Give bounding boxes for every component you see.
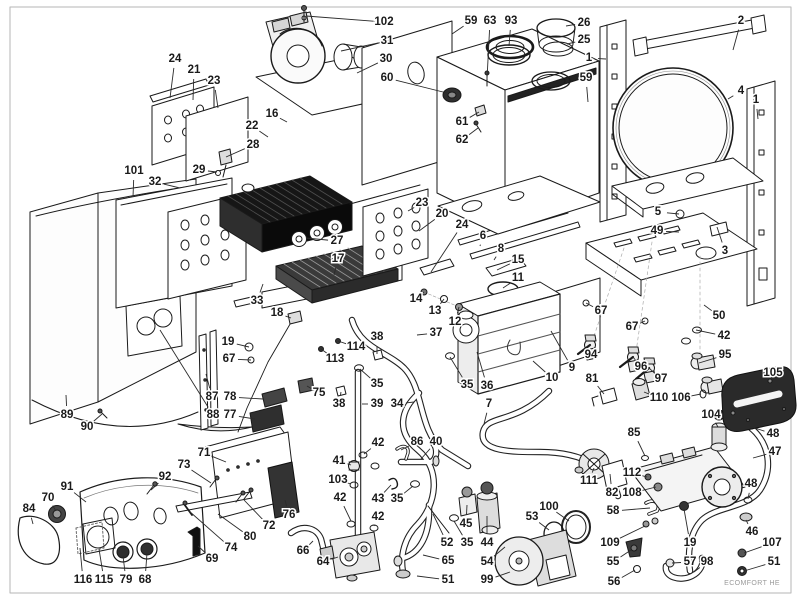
callout-label: 23	[416, 197, 429, 209]
callout-label: 24	[169, 53, 182, 65]
callout-label: 94	[585, 349, 598, 361]
callout-label: 43	[372, 493, 385, 505]
diagram-canvas: 2421231023130605963932625159241162228291…	[0, 0, 800, 600]
callout-label: 33	[251, 295, 264, 307]
callout-label: 61	[456, 116, 469, 128]
callout-label: 110	[650, 392, 669, 404]
callout-label: 19	[222, 336, 235, 348]
callout-label: 74	[225, 542, 238, 554]
callout-label: 107	[762, 537, 781, 549]
callout-label: 84	[23, 503, 36, 515]
callout-label: 59	[465, 15, 478, 27]
callout-label: 114	[347, 341, 366, 353]
callout-label: 3	[722, 245, 728, 257]
callout-label: 18	[271, 307, 284, 319]
callout-label: 42	[372, 511, 385, 523]
callout-label: 103	[328, 474, 347, 486]
exploded-parts-diagram: 2421231023130605963932625159241162228291…	[0, 0, 800, 600]
callout-label: 80	[244, 531, 257, 543]
callout-label: 51	[442, 574, 455, 586]
callout-label: 60	[381, 72, 394, 84]
callout-label: 50	[713, 310, 726, 322]
callout-label: 25	[578, 34, 591, 46]
callout-label: 54	[481, 556, 494, 568]
callout-label: 28	[247, 139, 260, 151]
callout-label: 17	[332, 253, 345, 265]
callout-label: 99	[481, 574, 494, 586]
callout-label: 88	[207, 409, 220, 421]
callout-label: 49	[651, 225, 664, 237]
callout-label: 98	[701, 556, 714, 568]
callout-label: 31	[381, 35, 394, 47]
callout-label: 11	[512, 272, 525, 284]
leader-line	[238, 359, 251, 360]
callout-label: 27	[331, 235, 344, 247]
callout-label: 7	[486, 398, 492, 410]
callout-label: 47	[769, 446, 782, 458]
leader-line	[340, 392, 341, 395]
callout-label: 26	[578, 17, 591, 29]
callout-label: 59	[580, 72, 593, 84]
callout-label: 35	[391, 493, 404, 505]
callout-label: 89	[61, 409, 74, 421]
callout-label: 62	[456, 134, 469, 146]
callout-label: 45	[460, 518, 473, 530]
callout-label: 44	[481, 537, 494, 549]
callout-label: 56	[608, 576, 621, 588]
callout-label: 96	[635, 361, 648, 373]
callout-label: 70	[42, 492, 55, 504]
callout-label: 95	[719, 349, 732, 361]
callout-label: 69	[206, 553, 219, 565]
callout-label: 113	[326, 353, 345, 365]
callout-label: 116	[74, 574, 93, 586]
callout-label: 35	[461, 537, 474, 549]
callout-label: 105	[763, 367, 783, 379]
callout-label: 93	[505, 15, 518, 27]
callout-label: 91	[61, 481, 74, 493]
callout-label: 112	[623, 467, 642, 479]
callout-label: 106	[671, 392, 690, 404]
callout-label: 34	[391, 398, 404, 410]
callout-label: 38	[371, 331, 384, 343]
callout-label: 52	[441, 537, 454, 549]
callout-label: 57	[684, 556, 697, 568]
callout-label: 13	[429, 305, 442, 317]
callout-label: 48	[745, 478, 758, 490]
callout-label: 76	[283, 509, 296, 521]
callout-label: 53	[526, 511, 539, 523]
callout-label: 100	[539, 501, 558, 513]
callout-label: 66	[297, 545, 310, 557]
callout-label: 68	[139, 574, 152, 586]
callout-label: 81	[586, 373, 599, 385]
callout-label: 111	[580, 475, 599, 487]
callout-label: 12	[449, 316, 462, 328]
leader-line	[666, 231, 679, 232]
leader-line	[66, 395, 67, 406]
callout-label: 67	[223, 353, 236, 365]
callout-label: 20	[436, 208, 449, 220]
callout-label: 22	[246, 120, 259, 132]
callout-label: 92	[159, 471, 172, 483]
callout-label: 73	[178, 459, 191, 471]
callout-label: 42	[718, 330, 731, 342]
callout-label: 2	[738, 15, 744, 27]
callout-label: 8	[498, 243, 505, 255]
callout-label: 9	[569, 362, 575, 374]
callout-label: 82	[606, 487, 619, 499]
callout-label: 90	[81, 421, 94, 433]
callout-label: 35	[371, 378, 384, 390]
callout-label: 6	[480, 230, 486, 242]
callout-label: 14	[410, 293, 423, 305]
callout-label: 87	[206, 391, 219, 403]
callout-label: 15	[512, 254, 525, 266]
callout-label: 86	[411, 436, 424, 448]
callout-label: 75	[313, 387, 326, 399]
callout-label: 16	[266, 108, 279, 120]
callout-label: 71	[198, 447, 211, 459]
callout-label: 72	[263, 520, 276, 532]
callout-label: 39	[371, 398, 384, 410]
callout-label: 79	[120, 574, 133, 586]
callout-label: 85	[628, 427, 641, 439]
callout-label: 5	[655, 206, 662, 218]
callout-label: 4	[738, 85, 745, 97]
leader-line	[466, 505, 467, 515]
callout-label: 63	[484, 15, 497, 27]
callout-label: 64	[317, 556, 330, 568]
callout-label: 41	[333, 455, 346, 467]
callout-label: 29	[193, 164, 206, 176]
callout-label: 42	[372, 437, 385, 449]
callout-label: 1	[586, 52, 593, 64]
callout-label: 32	[149, 176, 162, 188]
callout-label: 77	[224, 409, 237, 421]
callout-label: 78	[224, 391, 237, 403]
callout-label: 101	[124, 165, 144, 177]
callout-label: 109	[600, 537, 619, 549]
callout-label: 21	[188, 64, 201, 76]
callout-label: 67	[595, 305, 608, 317]
callout-label: 35	[461, 379, 474, 391]
leader-line	[672, 562, 681, 563]
callout-label: 97	[655, 373, 668, 385]
callout-label: 58	[607, 505, 620, 517]
callout-label: 108	[622, 487, 642, 499]
callout-label: 55	[607, 556, 620, 568]
callout-label: 115	[95, 574, 114, 586]
callout-label: 65	[442, 555, 455, 567]
callout-label: 37	[430, 327, 443, 339]
watermark: ECOMFORT HE	[724, 580, 780, 587]
callout-label: 48	[767, 428, 780, 440]
callout-label: 36	[481, 380, 494, 392]
callout-label: 1	[753, 94, 760, 106]
callout-label: 102	[374, 16, 393, 28]
callout-label: 46	[746, 526, 759, 538]
callout-label: 24	[456, 219, 469, 231]
callout-label: 23	[208, 75, 221, 87]
callout-label: 104	[701, 409, 721, 421]
display-housing	[722, 367, 796, 432]
callout-label: 30	[380, 53, 393, 65]
callout-label: 40	[430, 436, 443, 448]
callout-label: 67	[626, 321, 639, 333]
callout-label: 51	[768, 556, 781, 568]
callout-label: 42	[334, 492, 347, 504]
callout-label: 19	[684, 537, 697, 549]
callout-label: 38	[333, 398, 346, 410]
callout-label: 10	[546, 372, 559, 384]
